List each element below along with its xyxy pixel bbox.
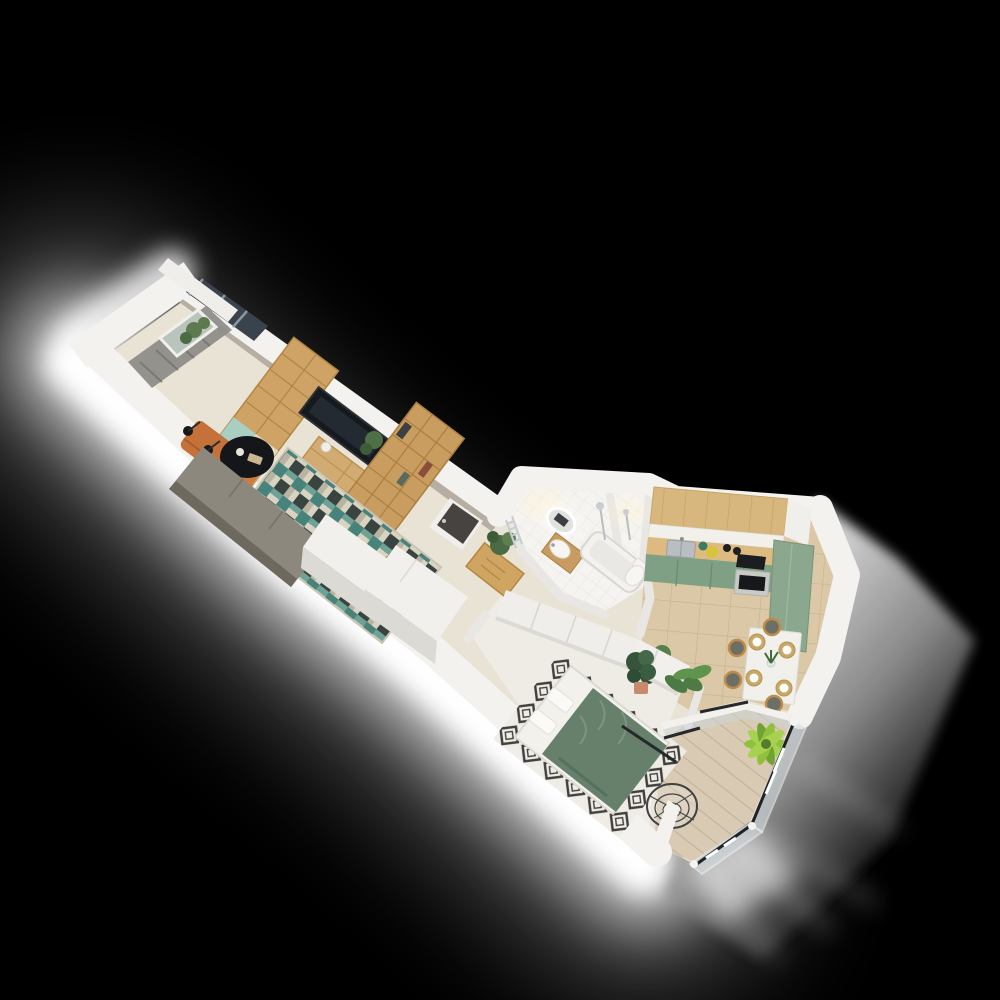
pot-2: [733, 547, 741, 555]
decor-clock: [321, 442, 331, 452]
fruit-bowl: [706, 546, 718, 558]
palm-center: [761, 739, 771, 749]
railing-post-2: [748, 822, 756, 830]
floor-plan-stage: [0, 0, 1000, 1000]
railing-post-3: [690, 860, 698, 868]
railing-post: [790, 718, 798, 726]
faucet: [551, 543, 555, 547]
floor-plan-render: [0, 0, 1000, 1000]
terracotta-pot: [634, 682, 648, 694]
shower-head: [596, 502, 604, 510]
door-handle: [442, 519, 446, 523]
shower-head-2: [623, 509, 629, 515]
teapot: [699, 542, 708, 551]
oven: [734, 570, 770, 597]
pot: [723, 544, 731, 552]
dining-table: [742, 627, 801, 704]
oven-window: [738, 575, 765, 591]
table-item: [236, 448, 244, 456]
